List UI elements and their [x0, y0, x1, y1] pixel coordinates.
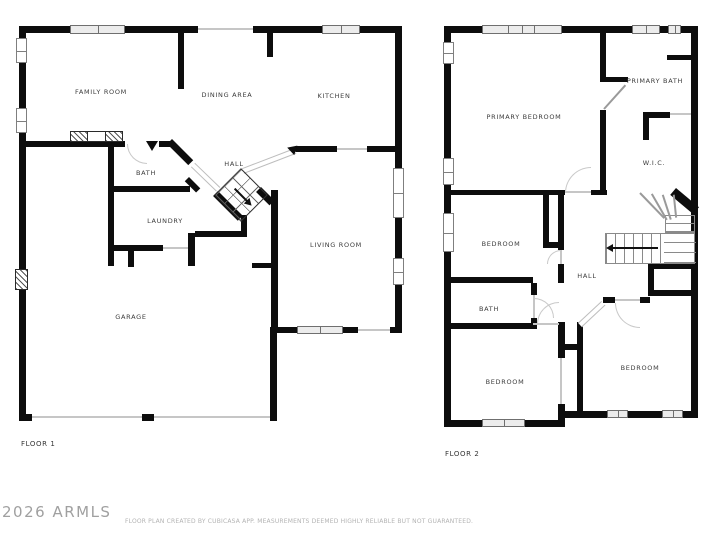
stair-treads: [606, 234, 664, 263]
window: [443, 213, 454, 252]
wall: [558, 322, 565, 358]
window: [443, 158, 454, 185]
wall: [543, 242, 564, 248]
window: [482, 419, 525, 427]
floor2-plan: PRIMARY BEDROOM PRIMARY BATH W.I.C. BEDR…: [0, 0, 720, 470]
diagonal-opening: [578, 301, 605, 327]
door-leaf-line: [603, 85, 626, 110]
wall: [451, 323, 533, 329]
floor2-caption: FLOOR 2: [445, 450, 479, 458]
disclaimer-text: FLOOR PLAN CREATED BY CUBICASA APP. MEAS…: [125, 518, 473, 525]
room-label-bath: BATH: [479, 305, 499, 313]
room-label-bedroom-2: BEDROOM: [482, 240, 521, 248]
armls-watermark: 2026 ARMLS: [2, 503, 111, 521]
room-label-primary-bath: PRIMARY BATH: [627, 77, 683, 85]
wall: [447, 277, 533, 283]
wall: [600, 110, 606, 195]
wall: [640, 297, 650, 303]
wall: [648, 290, 698, 296]
wall: [667, 55, 698, 60]
stair-arrow-tail: [613, 247, 658, 249]
room-label-bedroom-4: BEDROOM: [621, 364, 660, 372]
wall: [558, 404, 565, 414]
stair-arrow-icon: [606, 244, 613, 252]
door-opening: [615, 299, 640, 301]
wall: [565, 344, 577, 350]
stair-landing: [664, 234, 696, 263]
wall: [543, 195, 549, 247]
wall: [600, 77, 628, 82]
room-label-hall: HALL: [577, 272, 596, 280]
window: [668, 25, 681, 34]
wall: [531, 283, 537, 295]
door-swing-arc: [547, 250, 561, 264]
door-swing-arc: [615, 303, 640, 328]
closet-opening: [560, 358, 562, 404]
room-label-wic: W.I.C.: [643, 159, 666, 167]
staircase-floor2: [605, 233, 695, 264]
wall: [603, 297, 615, 303]
window: [443, 42, 454, 64]
room-label-primary-bedroom: PRIMARY BEDROOM: [487, 113, 562, 121]
window: [632, 25, 660, 34]
wall: [558, 264, 564, 283]
door-swing-arc: [565, 167, 591, 193]
window: [607, 410, 628, 418]
wall: [577, 322, 583, 418]
wall: [643, 112, 649, 140]
floorplan-page: { "floor1": { "label": "FLOOR 1", "rooms…: [0, 0, 720, 540]
wall: [591, 190, 607, 195]
wall: [600, 33, 606, 82]
room-label-bedroom-3: BEDROOM: [486, 378, 525, 386]
window: [662, 410, 683, 418]
window: [482, 25, 562, 34]
door-opening: [670, 113, 691, 115]
